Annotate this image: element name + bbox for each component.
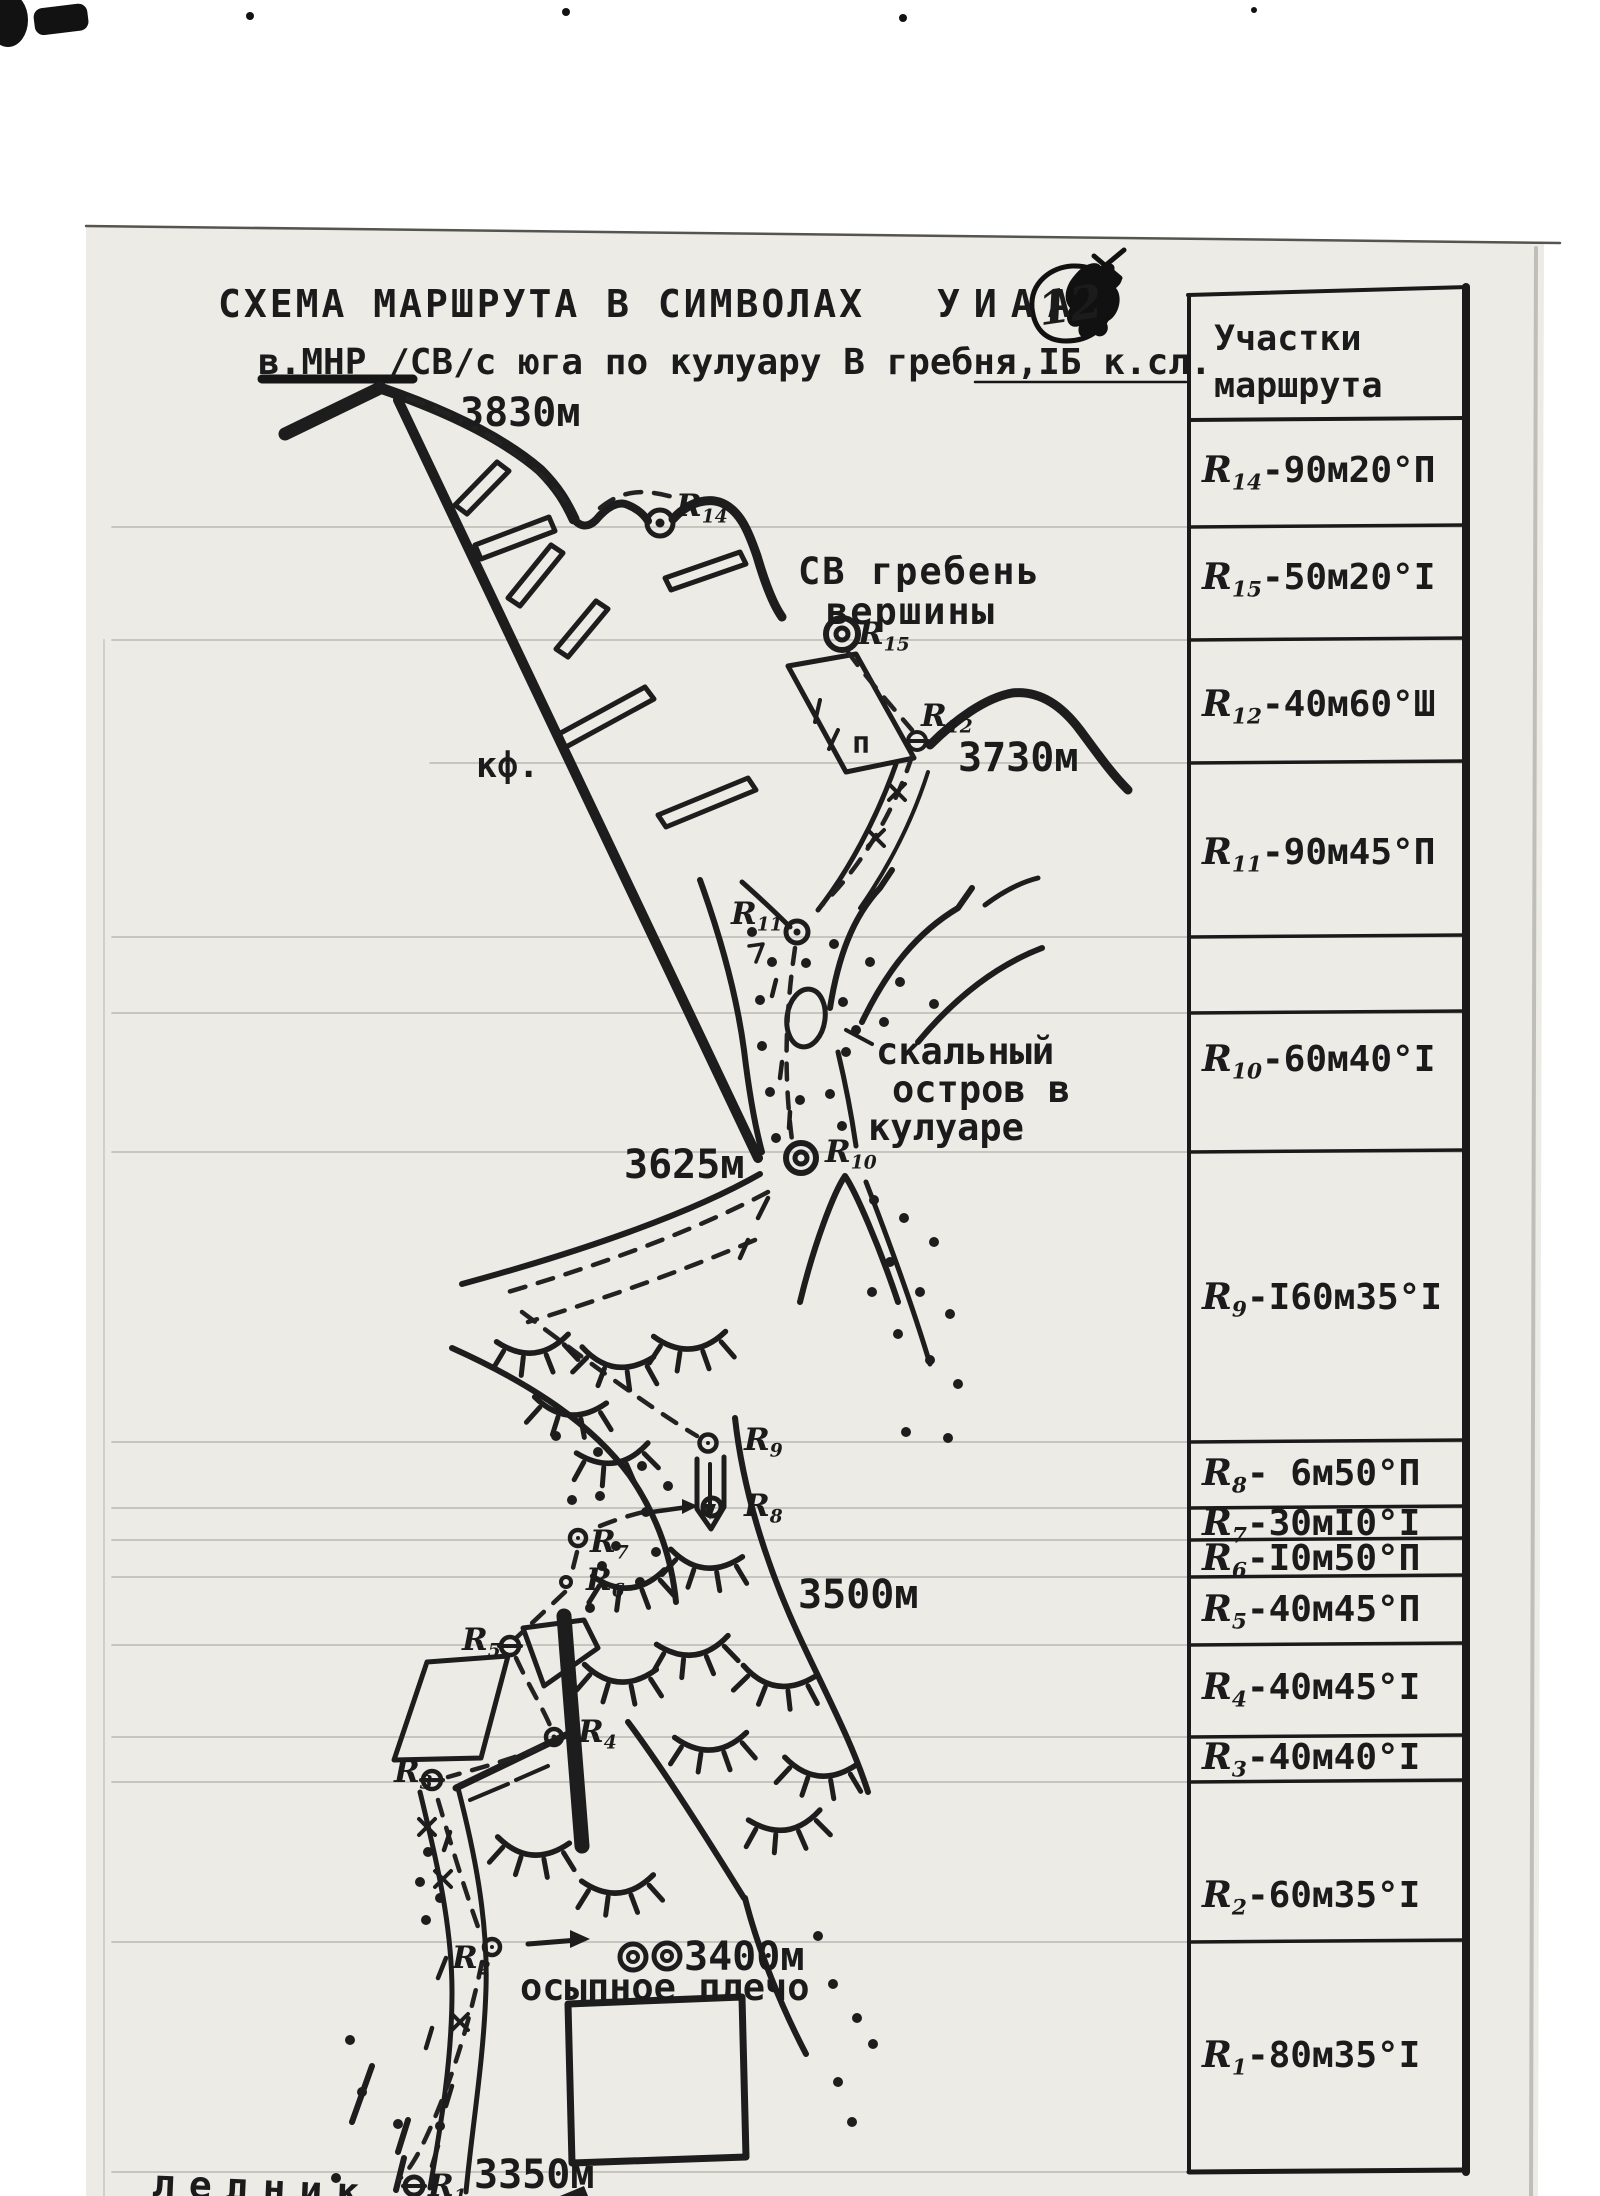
route-point-label-r15: R15 (858, 616, 910, 656)
altitude-3625-label: 3625м (624, 1142, 744, 1188)
altitude-3730-label: 3730м (958, 735, 1078, 781)
altitude-3500-label: 3500м (798, 1572, 918, 1618)
route-point-label-r4: R4 (578, 1714, 617, 1754)
pitch-info: -80м35°I (1247, 2035, 1420, 2076)
pitch-info: -60м40°I (1262, 1039, 1435, 1080)
route-point-label-r11: R11 (731, 896, 783, 936)
scanned-route-topo-page: СХЕМА МАРШРУТА В СИМВОЛАХУИАА 12 в.МНР /… (0, 0, 1600, 2196)
table-row-r8: R8- 6м50°П (1202, 1452, 1420, 1499)
rock-island-label-line3: кулуаре (868, 1106, 1024, 1149)
pitch-info: -60м35°I (1247, 1875, 1420, 1916)
route-point-label-r7: R7 (590, 1524, 629, 1564)
route-point-label-r3: R3 (394, 1754, 433, 1794)
table-row-r2: R2-60м35°I (1202, 1874, 1420, 1921)
altitude-3350-label: 3350м (474, 2152, 594, 2196)
page-title: СХЕМА МАРШРУТА В СИМВОЛАХУИАА (218, 282, 1084, 326)
table-row-r1: R1-80м35°I (1202, 2034, 1420, 2081)
route-point-label-r2: R2 (452, 1940, 491, 1980)
table-row-r5: R5-40м45°П (1202, 1588, 1420, 1635)
table-row-r14: R14-90м20°П (1202, 449, 1435, 496)
pitch-info: -40м60°Ш (1262, 684, 1435, 725)
pitch-info: -90м20°П (1262, 450, 1435, 491)
table-header: Участки маршрута (1214, 316, 1444, 411)
table-row-r4: R4-40м45°I (1202, 1666, 1420, 1713)
summit-altitude-label: 3830м (460, 390, 580, 436)
pitch-info: -40м45°I (1247, 1667, 1420, 1708)
rock-island-label-line1: скальный (876, 1030, 1054, 1073)
p-mark-label: п (852, 726, 870, 761)
route-point-label-r10: R10 (825, 1134, 877, 1174)
pitch-info: -90м45°П (1262, 832, 1435, 873)
table-row-r3: R3-40м40°I (1202, 1736, 1420, 1783)
route-subtitle: в.МНР /СВ/с юга по кулуару В гребня,IБ к… (258, 342, 1212, 383)
ne-ridge-label-line2: вершины (826, 590, 996, 633)
rock-island-label-line2: остров в (892, 1068, 1070, 1111)
buttress-label: кф. (476, 746, 539, 786)
table-row-r11: R11-90м45°П (1202, 831, 1435, 878)
table-row-r6: R6-I0м50°П (1202, 1537, 1420, 1584)
route-point-label-r12: R12 (921, 698, 973, 738)
title-main: СХЕМА МАРШРУТА В СИМВОЛАХ (218, 282, 865, 326)
pitch-info: -I0м50°П (1247, 1538, 1420, 1579)
table-row-r15: R15-50м20°I (1202, 556, 1435, 603)
pitch-info: -40м40°I (1247, 1737, 1420, 1778)
scree-shoulder-label: осыпное плечо (520, 1966, 810, 2009)
pitch-info: -I60м35°I (1247, 1277, 1442, 1318)
route-point-label-r1: R1 (428, 2168, 467, 2196)
pitch-info: -50м20°I (1262, 557, 1435, 598)
table-row-r10: R10-60м40°I (1202, 1038, 1435, 1085)
route-point-label-r14: R14 (676, 488, 728, 528)
page-number: 12 (1035, 274, 1106, 336)
table-row-r12: R12-40м60°Ш (1202, 683, 1435, 730)
pitch-info: - 6м50°П (1247, 1453, 1420, 1494)
route-point-label-r9: R9 (744, 1422, 783, 1462)
route-point-label-r6: R6 (586, 1562, 625, 1602)
route-point-label-r8: R8 (744, 1488, 783, 1528)
table-row-r9: R9-I60м35°I (1202, 1276, 1442, 1323)
scan-artifact-blobs (0, 0, 1257, 47)
pitch-info: -40м45°П (1247, 1589, 1420, 1630)
route-point-label-r5: R5 (462, 1622, 501, 1662)
ne-ridge-label-line1: СВ гребень (798, 550, 1041, 593)
